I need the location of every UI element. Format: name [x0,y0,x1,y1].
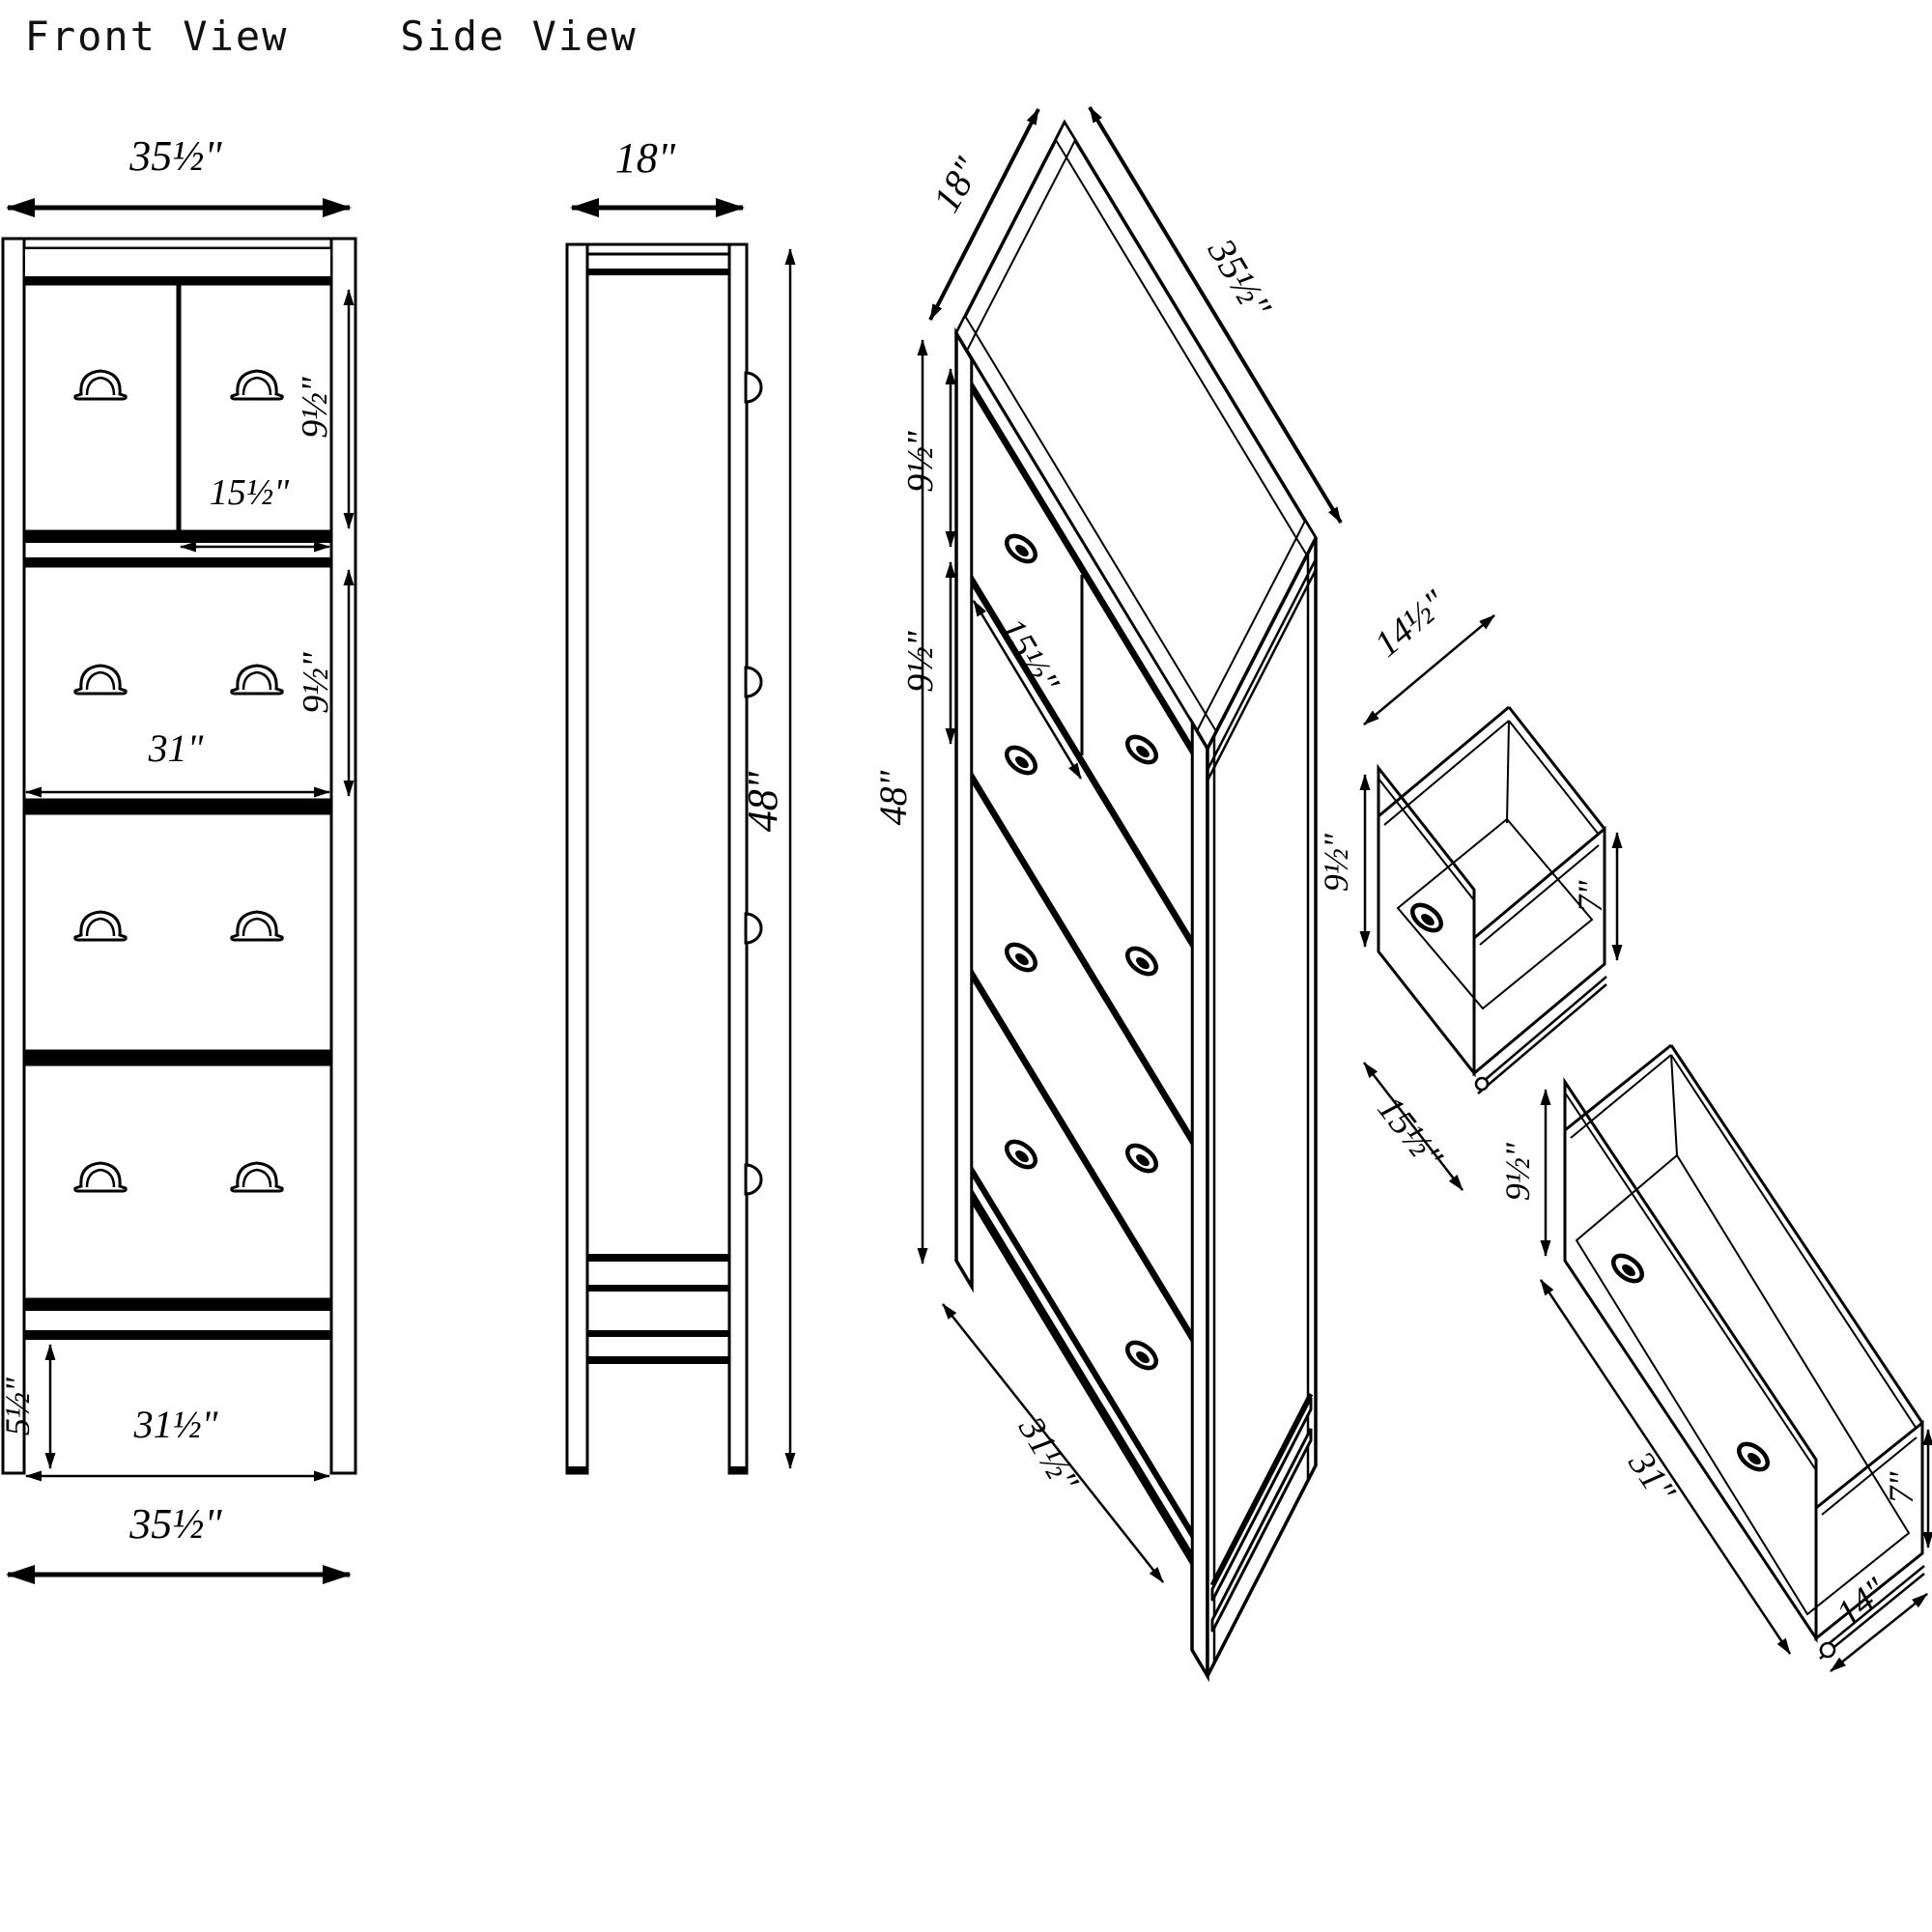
small-drawer-back-rim [1509,707,1605,829]
side-handle-profile-1 [746,373,761,402]
side-stretcher-1b [587,1285,729,1292]
iso-front-left-leg [956,333,972,1287]
small-drawer-left-rim [1378,707,1509,816]
small-drawer-back-rim-inner [1509,721,1599,835]
front-bottom-rail-b [24,1330,331,1340]
side-stretcher-2b [587,1356,729,1364]
small-drawer-slide-roller [1476,1078,1488,1090]
side-handle-profile-3 [746,914,761,943]
front-dim-drawer-width: 15½" [210,472,291,513]
front-dim-base-height: 5½" [0,1377,37,1435]
side-stretcher-2a [587,1330,729,1337]
small-drawer-right-panel [1474,829,1605,1073]
front-dim-top-drawer-height: 9½" [295,376,335,439]
large-drawer-detail: 9½" 7" 31" 14" [1498,1045,1928,1671]
front-drawer-row4 [24,1065,331,1299]
side-view-title: Side View [400,13,638,60]
iso-dim-depth: 18" [924,150,989,219]
iso-dim-second-drawer-height: 9½" [900,630,941,693]
front-view: Front View 35½" 15½" [0,13,355,1575]
front-drawer-row3 [24,813,331,1051]
large-drawer-dim-side-height: 7" [1882,1471,1920,1504]
small-drawer-left-rim-inner [1384,721,1509,825]
large-drawer-slide-roller [1821,1643,1834,1657]
small-drawer-dim-depth: 14½" [1367,582,1455,666]
front-left-leg [3,239,24,1473]
large-drawer-left-rim [1565,1045,1671,1130]
furniture-dimension-drawing: Front View 35½" 15½" [0,0,1932,1932]
iso-dim-base-opening-width: 31½" [1010,1409,1088,1500]
side-handle-profile-2 [746,668,761,696]
front-bottom-rail-a [24,1299,331,1311]
large-drawer-dim-front-height: 9½" [1498,1142,1537,1201]
iso-dim-top-drawer-height: 9½" [900,430,941,493]
side-handle-profile-4 [746,1165,761,1194]
small-drawer-dim-width: 15½" [1370,1089,1452,1178]
large-drawer-front-panel [1565,1082,1816,1638]
small-drawer-back-corner-line [1507,721,1509,823]
small-drawer-dim-front-height: 9½" [1317,833,1355,892]
front-rail-1a [24,531,331,543]
side-front-leg-cap [729,1466,747,1473]
front-dim-opening-width: 31" [148,726,204,770]
iso-front-right-leg [1192,723,1207,1676]
large-drawer-dim-width: 31" [1620,1443,1684,1511]
side-back-leg-cap [567,1466,587,1473]
side-top-edge [567,244,747,254]
iso-dim-overall-height: 48" [871,770,915,825]
side-front-leg [729,244,747,1473]
front-dim-overall-width-bottom: 35½" [128,1500,222,1548]
small-drawer-dim-side-height: 7" [1571,880,1609,913]
side-back-leg [567,244,587,1473]
large-drawer-left-rim-inner [1571,1055,1671,1138]
isometric-view: 18" 35½" 48" 9½" 9½" 15½" 31½" [871,107,1341,1676]
front-dim-overall-width-top: 35½" [128,132,222,180]
front-rail-3 [24,1051,331,1065]
technical-drawing-page: Front View 35½" 15½" [0,0,1932,1932]
side-view: Side View 18" 48" [400,13,790,1473]
front-dim-middle-drawer-height: 9½" [296,651,336,714]
front-view-title: Front View [25,13,289,60]
large-drawer-back-corner-line [1671,1055,1677,1155]
side-dim-overall-height: 48" [739,771,786,832]
side-stretcher-1a [587,1254,729,1262]
side-top-band [587,269,729,275]
front-rail-2 [24,800,331,813]
front-dim-base-opening-width: 31½" [133,1403,218,1446]
front-top-edge [3,239,355,248]
side-dim-depth: 18" [615,134,676,182]
front-top-apron [24,248,331,277]
